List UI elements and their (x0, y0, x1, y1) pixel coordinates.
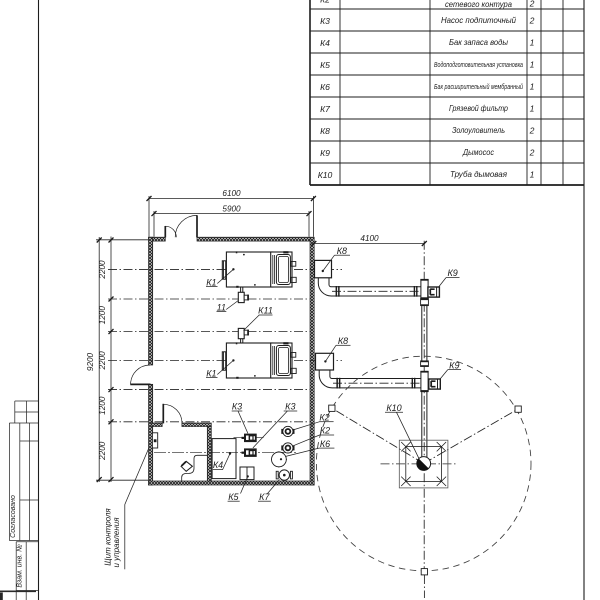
svg-text:К4: К4 (213, 460, 223, 470)
svg-text:11: 11 (217, 302, 226, 312)
svg-text:1: 1 (530, 104, 535, 114)
svg-text:К10: К10 (318, 170, 333, 180)
svg-text:К11: К11 (258, 306, 273, 316)
svg-text:и управления: и управления (112, 517, 121, 568)
svg-text:К9: К9 (449, 360, 459, 370)
svg-text:К3: К3 (285, 402, 295, 412)
svg-text:2: 2 (529, 0, 535, 9)
svg-text:Грязевой фильтр: Грязевой фильтр (449, 103, 508, 113)
svg-text:1: 1 (530, 170, 535, 180)
svg-text:2: 2 (529, 16, 535, 26)
svg-text:К1: К1 (206, 368, 216, 378)
svg-text:1200: 1200 (98, 306, 107, 325)
svg-text:К2: К2 (319, 412, 329, 422)
svg-text:1: 1 (530, 60, 535, 70)
svg-text:К5: К5 (320, 60, 330, 70)
svg-text:К10: К10 (386, 403, 401, 413)
svg-text:6100: 6100 (222, 189, 241, 198)
svg-text:5900: 5900 (222, 204, 241, 213)
svg-text:К8: К8 (338, 336, 348, 346)
svg-text:К3: К3 (320, 16, 330, 26)
svg-text:К3: К3 (232, 402, 242, 412)
svg-text:1: 1 (530, 82, 535, 92)
svg-text:Золоуловитель: Золоуловитель (452, 125, 505, 135)
svg-text:К2: К2 (320, 426, 330, 436)
svg-text:Дымосос: Дымосос (462, 147, 494, 157)
svg-text:Бак расширительный мембранный: Бак расширительный мембранный (434, 83, 523, 91)
svg-text:К2: К2 (320, 0, 330, 5)
svg-text:2: 2 (529, 126, 535, 136)
svg-text:Согласовано: Согласовано (10, 495, 17, 538)
svg-text:К1: К1 (206, 277, 216, 287)
svg-text:2200: 2200 (98, 441, 107, 461)
svg-text:1: 1 (530, 38, 535, 48)
svg-text:Насос подпиточный: Насос подпиточный (441, 15, 516, 25)
svg-text:2: 2 (529, 148, 535, 158)
svg-text:К7: К7 (320, 104, 331, 114)
svg-text:К7: К7 (259, 492, 270, 502)
svg-text:9200: 9200 (86, 352, 95, 371)
svg-text:Взам. инв. №: Взам. инв. № (16, 544, 23, 588)
svg-text:Водоподготовительная установка: Водоподготовительная установка (434, 61, 523, 69)
svg-text:Бак запаса воды: Бак запаса воды (449, 37, 509, 47)
svg-text:К9: К9 (447, 268, 457, 278)
svg-text:1200: 1200 (98, 396, 107, 415)
svg-text:К8: К8 (320, 126, 330, 136)
svg-text:2200: 2200 (98, 260, 107, 280)
svg-text:К4: К4 (320, 38, 330, 48)
svg-text:К8: К8 (337, 246, 347, 256)
svg-text:К6: К6 (320, 439, 330, 449)
svg-text:К9: К9 (320, 148, 330, 158)
svg-text:4100: 4100 (360, 234, 379, 243)
svg-text:2200: 2200 (98, 351, 107, 371)
svg-text:Труба дымовая: Труба дымовая (450, 169, 507, 179)
svg-text:сетевого контура: сетевого контура (445, 0, 512, 9)
svg-text:К6: К6 (320, 82, 330, 92)
svg-text:К5: К5 (228, 492, 239, 502)
